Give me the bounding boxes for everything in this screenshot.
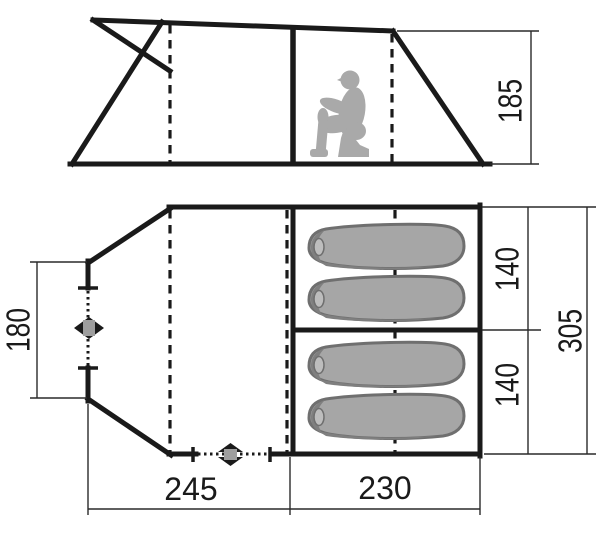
tent-dimension-diagram: 185 180 140 140 305 245 230 — [0, 0, 600, 533]
left-toggle-center — [83, 320, 95, 336]
height-dimension-label: 185 — [494, 79, 527, 123]
cabin-length-dimension-label: 230 — [358, 472, 411, 504]
front-toggle-center — [224, 449, 237, 460]
plan-bottomleft-diagonal — [88, 399, 171, 455]
person-hip — [346, 122, 366, 140]
front-entrance-toggle-icon — [218, 443, 243, 466]
rear-width-dimension-label: 180 — [2, 308, 35, 352]
total-depth-dimension-label: 305 — [554, 309, 587, 353]
cabin-depth-front-label: 140 — [491, 247, 524, 291]
sleeping-bag-1 — [309, 224, 464, 269]
side-ridge-line — [93, 20, 393, 31]
porch-length-dimension-label: 245 — [164, 473, 217, 505]
plan-topleft-diagonal — [88, 208, 171, 263]
sleeping-bag-3 — [309, 342, 464, 387]
side-right-slope — [393, 31, 483, 164]
side-left-slope — [72, 22, 162, 164]
person-front-foot — [310, 149, 328, 157]
sleeping-bag-4 — [309, 394, 464, 439]
sleeping-bag-2 — [309, 276, 464, 321]
left-entrance-toggle-icon — [74, 317, 104, 339]
side-elevation-view — [70, 20, 539, 164]
person-silhouette — [310, 71, 369, 158]
cabin-depth-rear-label: 140 — [491, 363, 524, 407]
